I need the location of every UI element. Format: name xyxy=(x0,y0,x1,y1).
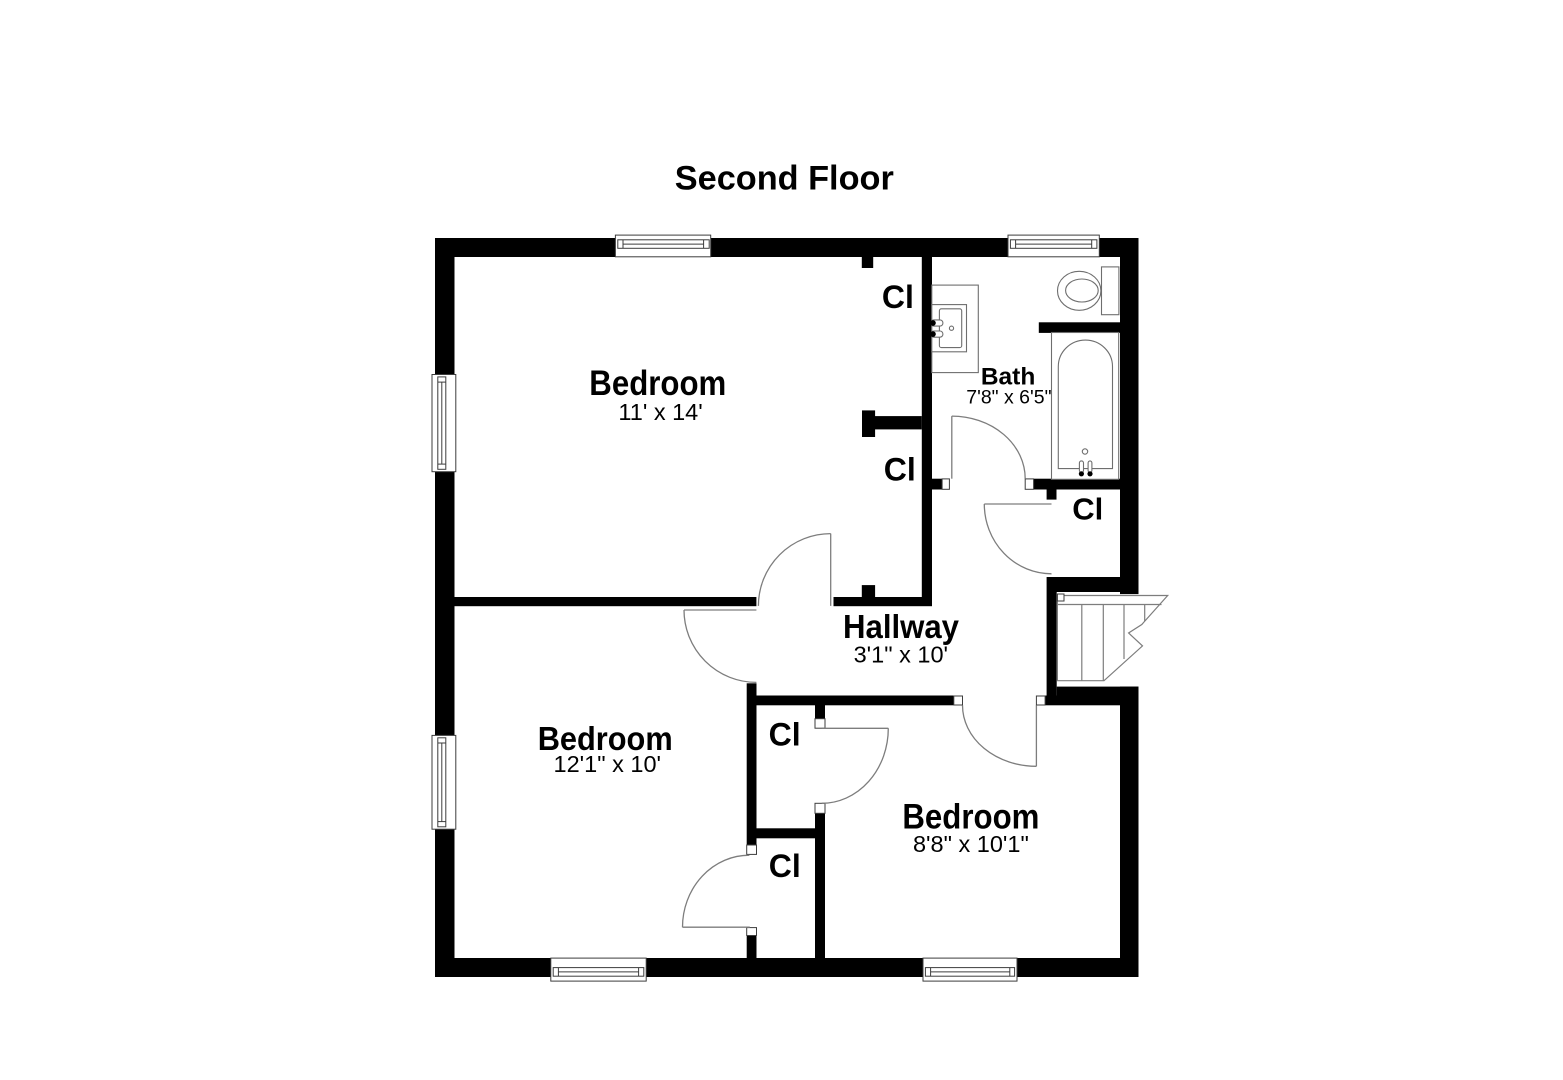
svg-text:Cl: Cl xyxy=(884,452,916,488)
svg-text:Cl: Cl xyxy=(1072,492,1103,527)
svg-text:Bedroom: Bedroom xyxy=(589,364,726,403)
svg-text:Second Floor: Second Floor xyxy=(675,160,894,198)
svg-text:Cl: Cl xyxy=(769,848,801,884)
svg-text:Cl: Cl xyxy=(769,717,801,753)
svg-text:Hallway: Hallway xyxy=(843,608,960,645)
svg-text:8'8" x 10'1": 8'8" x 10'1" xyxy=(913,831,1029,857)
svg-text:3'1" x 10': 3'1" x 10' xyxy=(854,641,948,667)
svg-text:11' x 14': 11' x 14' xyxy=(618,399,702,425)
svg-text:7'8" x 6'5": 7'8" x 6'5" xyxy=(966,386,1051,408)
svg-text:Cl: Cl xyxy=(882,279,914,315)
svg-text:12'1" x 10': 12'1" x 10' xyxy=(554,751,661,777)
